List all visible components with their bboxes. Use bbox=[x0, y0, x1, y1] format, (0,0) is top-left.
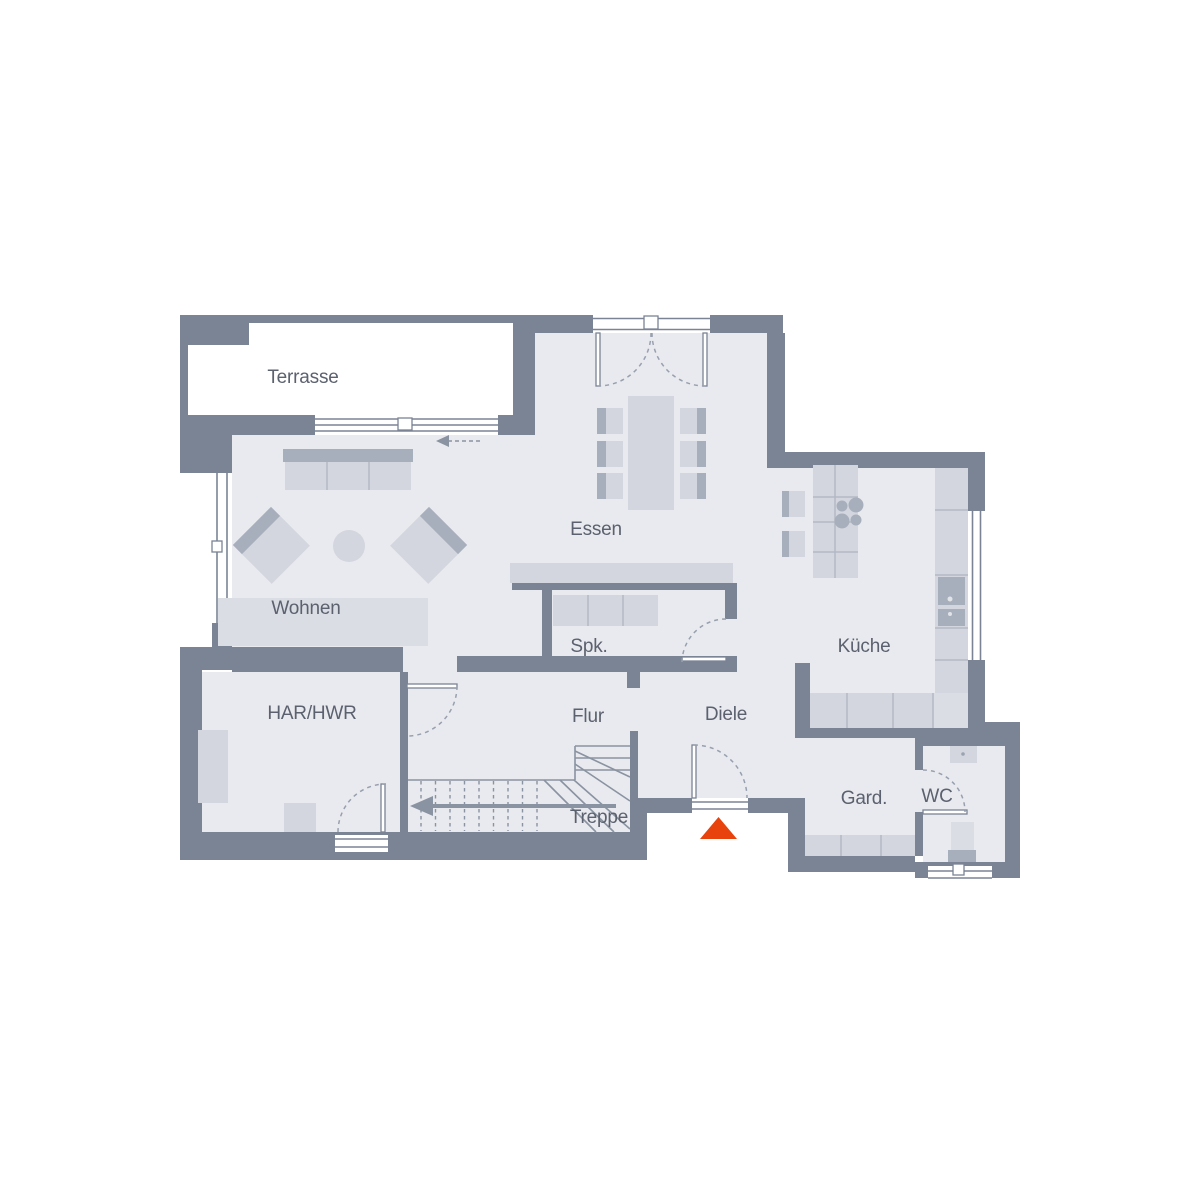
pantry-shelves bbox=[553, 595, 658, 626]
room-label-spk: Spk. bbox=[570, 636, 607, 657]
room-label-essen: Essen bbox=[570, 519, 622, 540]
sofa bbox=[283, 449, 413, 490]
kitchen-counter-east bbox=[935, 468, 968, 693]
wc-sink bbox=[950, 746, 977, 763]
har-unit bbox=[284, 803, 316, 832]
kitchen-counter-south bbox=[810, 693, 968, 728]
har-cabinet bbox=[198, 730, 228, 803]
floor-plan: Terrasse Wohnen Essen Spk. Küche HAR/HWR… bbox=[0, 0, 1200, 1200]
sliding-door-terrasse bbox=[315, 415, 498, 435]
room-label-flur: Flur bbox=[572, 706, 605, 727]
room-label-terrasse: Terrasse bbox=[267, 367, 338, 388]
room-label-gard: Gard. bbox=[841, 788, 888, 809]
side-table bbox=[333, 530, 365, 562]
room-label-diele: Diele bbox=[705, 704, 747, 725]
window-kueche-east bbox=[968, 511, 985, 660]
room-label-treppe: Treppe bbox=[570, 807, 628, 828]
kitchen-peninsula bbox=[813, 465, 864, 578]
wc-toilet bbox=[948, 822, 976, 862]
floor-plan-page: Terrasse Wohnen Essen Spk. Küche HAR/HWR… bbox=[0, 0, 1200, 1200]
room-label-kueche: Küche bbox=[838, 636, 891, 657]
dining-table bbox=[628, 396, 674, 510]
room-label-wohnen: Wohnen bbox=[271, 598, 340, 619]
entrance-marker-icon bbox=[700, 817, 737, 839]
room-label-wc: WC bbox=[921, 786, 952, 807]
appliance bbox=[938, 609, 965, 626]
window-wc-south bbox=[928, 864, 992, 884]
gard-cabinets bbox=[805, 835, 915, 856]
room-label-har-hwr: HAR/HWR bbox=[267, 703, 356, 724]
sideboard bbox=[510, 563, 733, 583]
